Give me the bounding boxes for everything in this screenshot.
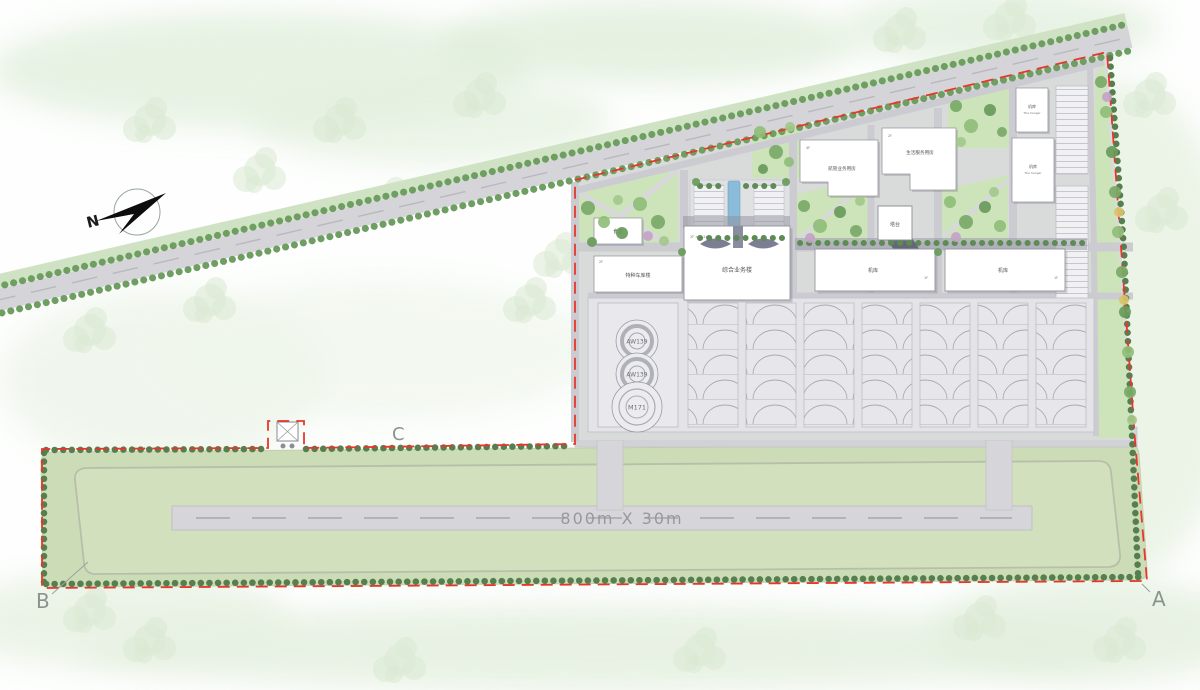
- tree: [598, 216, 610, 228]
- background-tree-blob: [1122, 636, 1146, 660]
- floor-tag: 2F: [599, 260, 603, 264]
- background-tree-blob: [532, 296, 556, 320]
- background-tree-blob: [1145, 72, 1167, 94]
- background-tree-blob: [895, 7, 917, 29]
- helipad-label: AW139: [626, 339, 647, 346]
- building-vehicle-garage: 特种车库楼 2F: [594, 256, 684, 294]
- building-label: 综合业务楼: [722, 266, 752, 274]
- background-tree-blob: [152, 116, 176, 140]
- background-tree-blob: [342, 116, 366, 140]
- tree: [813, 219, 827, 233]
- tree: [769, 145, 783, 159]
- tree: [951, 232, 961, 242]
- building-sublabel: The hangar: [1022, 111, 1041, 115]
- floor-tag: 1F: [924, 276, 928, 280]
- background-tree-blob: [1152, 91, 1176, 115]
- background-tree-blob: [145, 97, 167, 119]
- background-tree-blob: [135, 645, 153, 663]
- background-tree-blob: [212, 296, 236, 320]
- background-tree-blob: [1115, 617, 1137, 639]
- gate-bollard: [290, 444, 295, 449]
- background-tree-blob: [245, 175, 263, 193]
- tree: [1095, 76, 1107, 88]
- tree: [758, 164, 768, 174]
- floor-tag: 1F: [1054, 276, 1058, 280]
- background-tree-blob: [92, 606, 116, 630]
- tree: [754, 126, 766, 138]
- tree: [1112, 226, 1124, 238]
- tree: [1119, 306, 1131, 318]
- taxiway-west: [597, 440, 623, 510]
- tree: [984, 104, 996, 116]
- building-label: 航管业务用房: [828, 165, 856, 172]
- tree: [850, 225, 862, 237]
- airstrip-field: 800m X 30m: [41, 444, 1147, 587]
- site-plan-drawing: 800m X 30m: [0, 0, 1200, 690]
- background-tree-blob: [1157, 187, 1179, 209]
- tree: [1102, 92, 1112, 102]
- tree: [950, 100, 962, 112]
- background-tree-blob: [75, 335, 93, 353]
- corner-c-label: C: [392, 424, 405, 445]
- background-tree-blob: [75, 615, 93, 633]
- tree: [997, 127, 1007, 137]
- background-tree-blob: [885, 35, 903, 53]
- tree: [944, 196, 956, 208]
- background-tree-blob: [702, 646, 726, 670]
- background-tree-blob: [515, 305, 533, 323]
- tree: [956, 137, 966, 147]
- building-label: 机库: [1029, 163, 1037, 169]
- background-tree-blob: [195, 305, 213, 323]
- corner-b-label: B: [36, 589, 50, 613]
- floor-tag: 4F: [806, 146, 810, 150]
- building-label: 机库: [998, 267, 1008, 274]
- background-tree-blob: [395, 637, 417, 659]
- tree: [643, 231, 653, 241]
- background-tree-blob: [255, 147, 277, 169]
- tree: [798, 200, 810, 212]
- apron-stall-columns: [688, 303, 1086, 427]
- north-compass: N: [85, 189, 166, 235]
- tree: [1122, 346, 1134, 358]
- building-label: 机库: [868, 267, 878, 274]
- runway-dimension-label: 800m X 30m: [560, 509, 683, 528]
- background-tree-blob: [965, 623, 983, 641]
- north-label: N: [85, 211, 102, 232]
- north-arrow-icon: [96, 193, 166, 234]
- building-hangar-east: 机库 1F: [945, 249, 1068, 294]
- gate-bollard: [281, 444, 286, 449]
- tree: [934, 248, 942, 256]
- background-tree-blob: [975, 595, 997, 617]
- background-tree-blob: [995, 23, 1013, 41]
- tree: [1109, 186, 1121, 198]
- tree: [964, 119, 978, 133]
- background-tree-blob: [85, 307, 107, 329]
- gate-house: [277, 422, 298, 449]
- background-tree-blob: [135, 125, 153, 143]
- tree: [616, 227, 628, 239]
- background-tree-blob: [1164, 206, 1188, 230]
- tree: [692, 178, 700, 186]
- background-tree-blob: [152, 636, 176, 660]
- tree: [651, 215, 665, 229]
- background-tree-blob: [482, 91, 506, 115]
- background-tree-blob: [325, 125, 343, 143]
- tree: [784, 157, 794, 167]
- tree: [785, 122, 795, 132]
- helipad-label: M171: [628, 404, 646, 412]
- background-tree-blob: [85, 587, 107, 609]
- tree: [979, 201, 991, 213]
- background-tree-blob: [545, 260, 563, 278]
- building-label: 塔台: [890, 221, 900, 228]
- tree: [613, 195, 623, 205]
- parking-strip-east: [1056, 86, 1088, 174]
- tree: [581, 201, 595, 215]
- corner-a-label: A: [1152, 587, 1166, 611]
- building-hangar-small: 机库 The hangar: [1016, 88, 1050, 134]
- background-tree-blob: [902, 26, 926, 50]
- tree: [587, 237, 597, 247]
- tree: [1124, 386, 1136, 398]
- tree: [989, 187, 999, 197]
- building-label: 生活服务用房: [906, 149, 934, 156]
- apron: AW139 AW139 M171: [588, 298, 1094, 432]
- background-tree-blob: [685, 655, 703, 673]
- building-hangar-west: 机库 1F: [815, 249, 938, 294]
- background-tree-blob: [1012, 14, 1036, 38]
- taxiway-east: [986, 440, 1012, 510]
- tree: [782, 178, 790, 186]
- tree: [1127, 415, 1137, 425]
- background-tree-blob: [1135, 100, 1153, 118]
- tree: [633, 197, 647, 211]
- background-tree-blob: [525, 277, 547, 299]
- tree: [805, 233, 815, 243]
- background-tree-blob: [695, 627, 717, 649]
- tree: [855, 196, 865, 206]
- background-tree-blob: [145, 617, 167, 639]
- building-label: 特种车库楼: [625, 272, 650, 279]
- background-tree-blob: [92, 326, 116, 350]
- tree: [659, 236, 669, 246]
- tree: [678, 248, 686, 256]
- building-label: 机库: [1028, 103, 1036, 109]
- tree: [1116, 266, 1128, 278]
- tree: [994, 220, 1006, 232]
- background-tree-blob: [1105, 645, 1123, 663]
- site-plan-canvas: 800m X 30m: [0, 0, 1200, 690]
- background-tree-blob: [402, 656, 426, 680]
- building-sublabel: The hangar: [1023, 171, 1042, 175]
- tree: [834, 206, 846, 218]
- tree: [959, 215, 973, 229]
- background-tree-blob: [262, 166, 286, 190]
- tree: [1119, 295, 1129, 305]
- background-tree-blob: [385, 665, 403, 683]
- background-tree-blob: [465, 100, 483, 118]
- background-tree-blob: [205, 277, 227, 299]
- building-hangar-tall: 机库 The hangar: [1012, 138, 1056, 204]
- helipad-label: AW139: [626, 372, 647, 379]
- background-tree-blob: [475, 72, 497, 94]
- tree: [1100, 106, 1112, 118]
- floor-tag: 2F: [888, 134, 892, 138]
- background-tree-blob: [982, 614, 1006, 638]
- tree: [1114, 207, 1124, 217]
- helipad-m171: M171: [612, 382, 662, 432]
- tree: [1106, 146, 1118, 158]
- background-tree-blob: [335, 97, 357, 119]
- background-tree-blob: [1147, 215, 1165, 233]
